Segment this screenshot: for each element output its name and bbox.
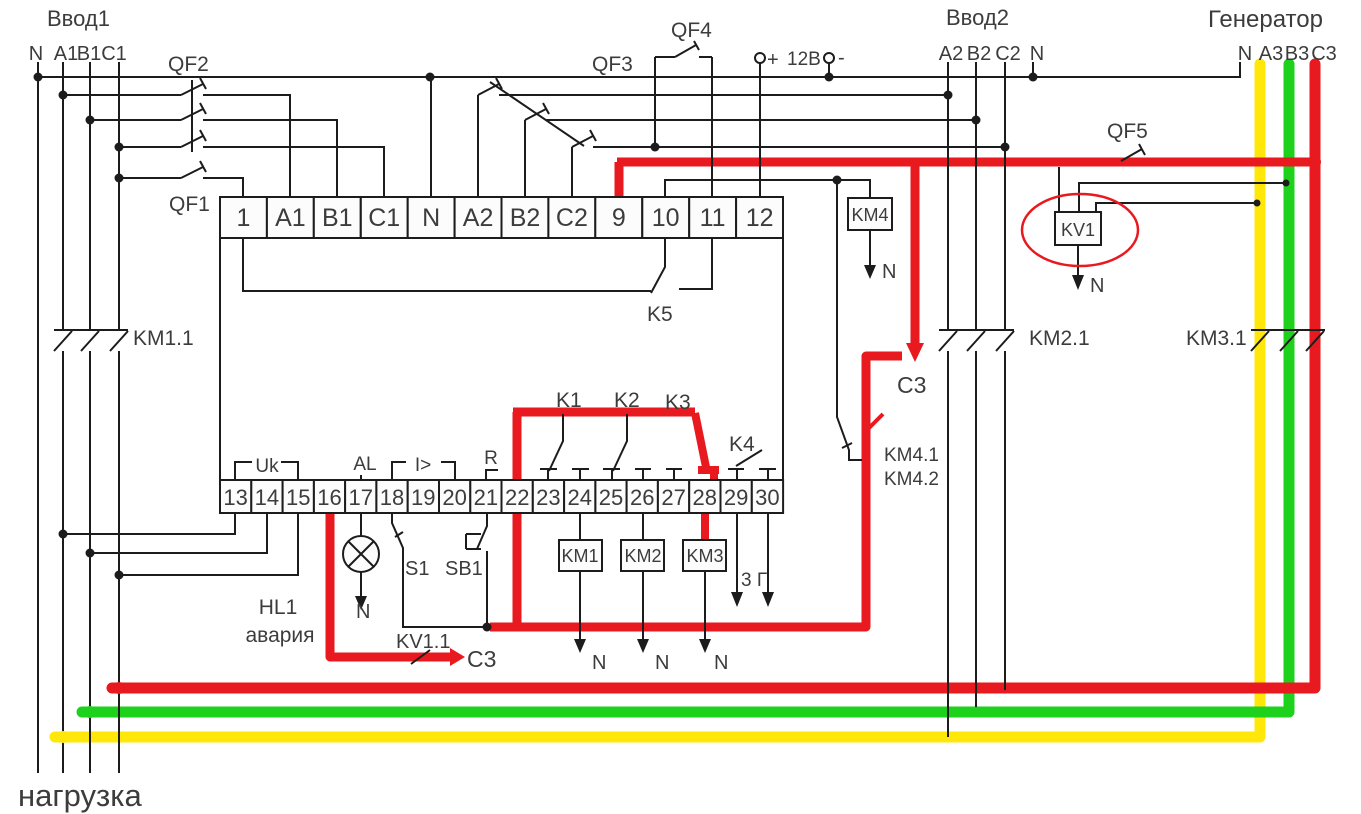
terminal-19-label: 19 (411, 485, 435, 510)
battery-minus-terminal (824, 53, 834, 63)
gen-wire-n: N (1238, 43, 1252, 65)
wire-13-a1 (63, 513, 235, 534)
kv1-coil: KV1 (1055, 212, 1101, 245)
terminal-bottom-13: 13 (220, 480, 251, 513)
sb1-label: SB1 (445, 558, 483, 580)
dot-c3-bus (1309, 156, 1321, 168)
terminal-top-b1-label: B1 (322, 204, 353, 232)
terminal-bottom-22: 22 (502, 480, 533, 513)
arrow-km1-n (574, 639, 586, 653)
qf3-arms (478, 82, 593, 147)
component-boxes: KM4 KV1 KM1 KM2 KM3 (559, 198, 1101, 571)
battery-plus-terminal (755, 53, 765, 63)
terminal-top-c1-label: C1 (368, 204, 400, 232)
km4-2-label: KM4.2 (884, 469, 939, 490)
terminal-top-9-label: 9 (612, 204, 626, 232)
in2-wire-c2: C2 (995, 43, 1021, 65)
arrow-out-29 (731, 592, 743, 607)
km3-1-label: KM3.1 (1186, 327, 1247, 350)
terminal-top-n: N (408, 197, 455, 238)
km1-1-label: KM1.1 (133, 327, 194, 350)
terminal-top-n-label: N (422, 204, 440, 232)
terminal-row-bottom: 13 14 15 16 17 18 19 20 21 22 23 24 25 2… (220, 480, 783, 513)
terminal-29-label: 29 (724, 485, 748, 510)
k3-label: K3 (665, 391, 691, 414)
r-bracket (486, 470, 498, 480)
terminal-26-label: 26 (630, 485, 654, 510)
qf3-ticks (496, 78, 596, 141)
terminal-27-label: 27 (661, 485, 685, 510)
current-label: I> (415, 455, 431, 476)
terminal-top-c2: C2 (548, 197, 595, 238)
qf2-feeds (63, 95, 181, 147)
terminal-top-10-label: 10 (652, 204, 680, 232)
gen-wire-a3: A3 (1259, 43, 1283, 65)
terminal-bottom-16: 16 (314, 480, 345, 513)
k2-label: K2 (614, 389, 640, 412)
wire-neutral-bus (38, 62, 1240, 77)
terminal-14-label: 14 (255, 485, 279, 510)
terminal-top-b1: B1 (314, 197, 361, 238)
terminal-bottom-14: 14 (251, 480, 282, 513)
dot-c1-red (113, 682, 125, 694)
terminal-top-a1-label: A1 (275, 204, 306, 232)
in1-wire-n: N (29, 43, 43, 65)
terminal-bottom-26: 26 (627, 480, 658, 513)
terminal-bottom-15: 15 (283, 480, 314, 513)
terminal-bottom-23: 23 (533, 480, 564, 513)
in1-wire-a1: A1 (54, 43, 78, 65)
qf3-outputs (478, 95, 572, 197)
terminal-bottom-19: 19 (408, 480, 439, 513)
qf2-outputs (203, 95, 384, 197)
terminal-25-label: 25 (599, 485, 623, 510)
terminal-top-11: 11 (689, 197, 736, 238)
uk-label: Uk (255, 456, 279, 477)
terminal-top-11-label: 11 (700, 204, 726, 232)
terminal-bottom-29: 29 (721, 480, 752, 513)
qf3-label: QF3 (592, 53, 633, 76)
km1-1-contact (54, 330, 128, 351)
start-out-label: 3 Г (741, 570, 767, 591)
qf4-label: QF4 (671, 19, 712, 42)
terminal-28-label: 28 (693, 485, 717, 510)
km2-coil-label: KM2 (624, 546, 661, 566)
km1-coil-label: KM1 (561, 546, 598, 566)
terminal-13-label: 13 (223, 485, 247, 510)
km3-coil-label: KM3 (686, 546, 723, 566)
qf1-label: QF1 (169, 193, 210, 216)
k4-label: K4 (729, 433, 755, 456)
terminal-16-label: 16 (317, 485, 341, 510)
in2-wire-a2: A2 (939, 43, 963, 65)
terminal-30-label: 30 (755, 485, 779, 510)
al-label: AL (353, 454, 376, 475)
qf2-arms (181, 80, 203, 152)
terminal-top-9: 9 (595, 197, 642, 238)
terminal-bottom-28: 28 (689, 480, 720, 513)
terminal-top-1-label: 1 (237, 204, 251, 232)
input1-title: Ввод1 (47, 6, 110, 31)
km1-coil: KM1 (559, 540, 602, 571)
km2-coil: KM2 (621, 540, 664, 571)
km4-1-label: KM4.1 (884, 445, 939, 466)
in1-wire-c1: C1 (101, 43, 127, 65)
battery-minus-label: - (838, 47, 845, 69)
terminal-24-label: 24 (568, 485, 592, 510)
arrow-kv1-n (1072, 275, 1084, 290)
terminal-top-12: 12 (736, 197, 783, 238)
dot-b1-green (84, 706, 96, 718)
terminal-23-label: 23 (536, 485, 560, 510)
arrowheads (355, 265, 1084, 653)
k5-label: K5 (647, 303, 673, 326)
input2-title: Ввод2 (946, 5, 1009, 30)
terminal-top-12-label: 12 (746, 204, 774, 232)
terminal-bottom-27: 27 (658, 480, 689, 513)
terminal-top-b2: B2 (502, 197, 549, 238)
ats-wiring-diagram: 1 A1 B1 C1 N A2 B2 C2 9 10 11 12 13 14 1… (0, 0, 1361, 814)
red-k3-arm (695, 413, 706, 467)
terminal-bottom-30: 30 (752, 480, 783, 513)
battery-plus-label: + (767, 49, 779, 71)
terminal-top-a1: A1 (267, 197, 314, 238)
c3-feed-label: С3 (897, 372, 926, 398)
km-coil-stubs (580, 513, 643, 540)
n-label-km3: N (714, 652, 728, 674)
km4-coil: KM4 (848, 198, 892, 230)
terminal-top-c1: C1 (361, 197, 408, 238)
terminal-bottom-24: 24 (564, 480, 595, 513)
terminal-15-label: 15 (286, 485, 310, 510)
wire-15-c1 (119, 513, 298, 575)
hl1-label: HL1 (259, 596, 298, 619)
hl1-caption: авария (245, 624, 314, 647)
terminal-top-1: 1 (220, 197, 267, 238)
qf2-label: QF2 (168, 53, 209, 76)
terminal-21-label: 21 (474, 485, 498, 510)
load-title: нагрузка (18, 778, 143, 813)
terminal-20-label: 20 (442, 485, 466, 510)
k1-arm (549, 414, 563, 471)
gen-wire-b3: B3 (1285, 43, 1309, 65)
r-label: R (484, 448, 498, 469)
km2-1-contact (939, 330, 1014, 351)
c3-out-label: С3 (467, 646, 496, 672)
terminal-top-10: 10 (642, 197, 689, 238)
in2-wire-b2: B2 (967, 43, 991, 65)
terminal-top-a2: A2 (455, 197, 502, 238)
k1-label: K1 (556, 389, 582, 412)
terminal-top-a2-label: A2 (463, 204, 494, 232)
terminal-row-top: 1 A1 B1 C1 N A2 B2 C2 9 10 11 12 (220, 197, 783, 238)
terminal-top-c2-label: C2 (556, 204, 588, 232)
km2-1-label: KM2.1 (1029, 327, 1090, 350)
terminal-bottom-21: 21 (470, 480, 501, 513)
gen-wire-c3: C3 (1311, 43, 1337, 65)
c3-arrowhead (906, 343, 924, 362)
in2-wire-n: N (1030, 43, 1044, 65)
in1-wire-b1: B1 (77, 43, 101, 65)
dot-a1-yellow (57, 731, 69, 743)
schematic-page: 1 A1 B1 C1 N A2 B2 C2 9 10 11 12 13 14 1… (0, 0, 1361, 814)
kv11-arrowhead (450, 648, 465, 666)
k2-arm (613, 414, 627, 471)
km4-coil-label: KM4 (851, 205, 888, 225)
n-label-lamp: N (356, 601, 370, 623)
arrow-km3-n (699, 639, 711, 653)
qf1-circuit (119, 161, 243, 197)
arrow-km4-n (864, 265, 876, 279)
battery-voltage-label: 12В (787, 49, 821, 70)
kv1-1-label: KV1.1 (396, 631, 450, 653)
km3-coil: KM3 (683, 540, 726, 571)
n-label-km2: N (655, 652, 669, 674)
terminal-bottom-17: 17 (345, 480, 376, 513)
n-label-kv1: N (1090, 275, 1104, 297)
terminal-top-b2-label: B2 (510, 204, 541, 232)
arrow-out-30 (762, 592, 774, 607)
kv1-coil-label: KV1 (1061, 220, 1095, 240)
s1-label: S1 (405, 558, 429, 580)
k5-circuit (243, 238, 712, 293)
terminal-17-label: 17 (349, 485, 373, 510)
terminal-22-label: 22 (505, 485, 529, 510)
qf5-label: QF5 (1107, 120, 1148, 143)
terminal-bottom-25: 25 (595, 480, 626, 513)
terminal-18-label: 18 (380, 485, 404, 510)
n-label-km1: N (592, 652, 606, 674)
terminal-bottom-20: 20 (439, 480, 470, 513)
terminal-bottom-18: 18 (376, 480, 407, 513)
dot-b2-green (971, 707, 981, 717)
n-label-km4: N (882, 261, 896, 283)
generator-title: Генератор (1208, 6, 1323, 33)
arrow-km2-n (637, 639, 649, 653)
